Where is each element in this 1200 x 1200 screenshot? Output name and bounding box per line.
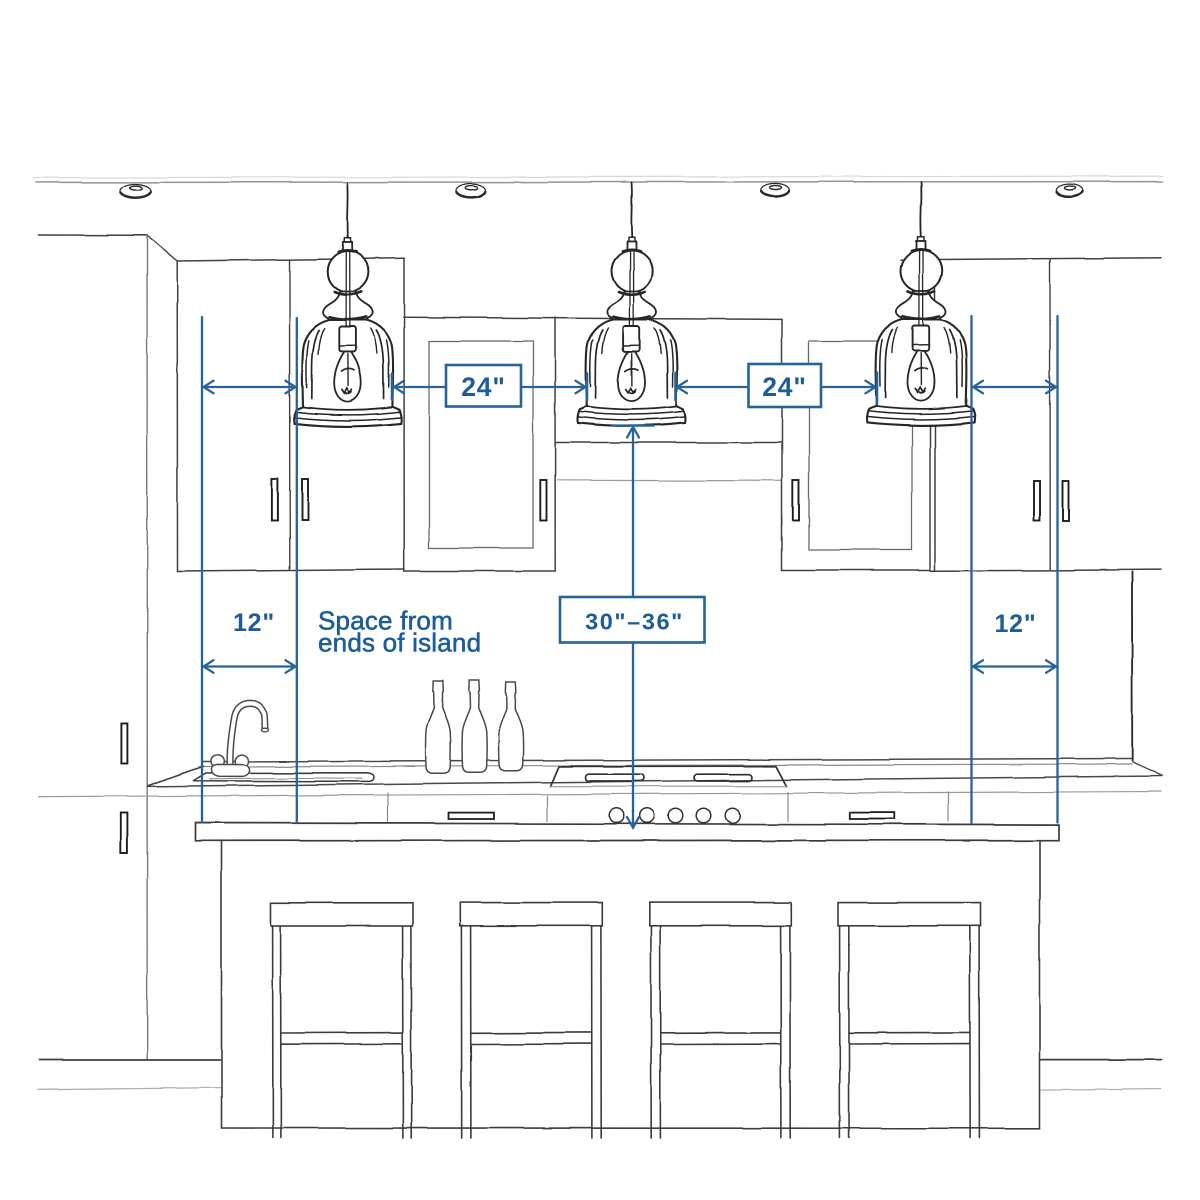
svg-text:30"–36": 30"–36"	[585, 609, 684, 635]
svg-text:24": 24"	[461, 372, 505, 402]
svg-text:24": 24"	[762, 372, 806, 402]
svg-text:ends of island: ends of island	[318, 628, 481, 658]
svg-text:12": 12"	[994, 610, 1036, 638]
svg-text:12": 12"	[233, 609, 275, 637]
